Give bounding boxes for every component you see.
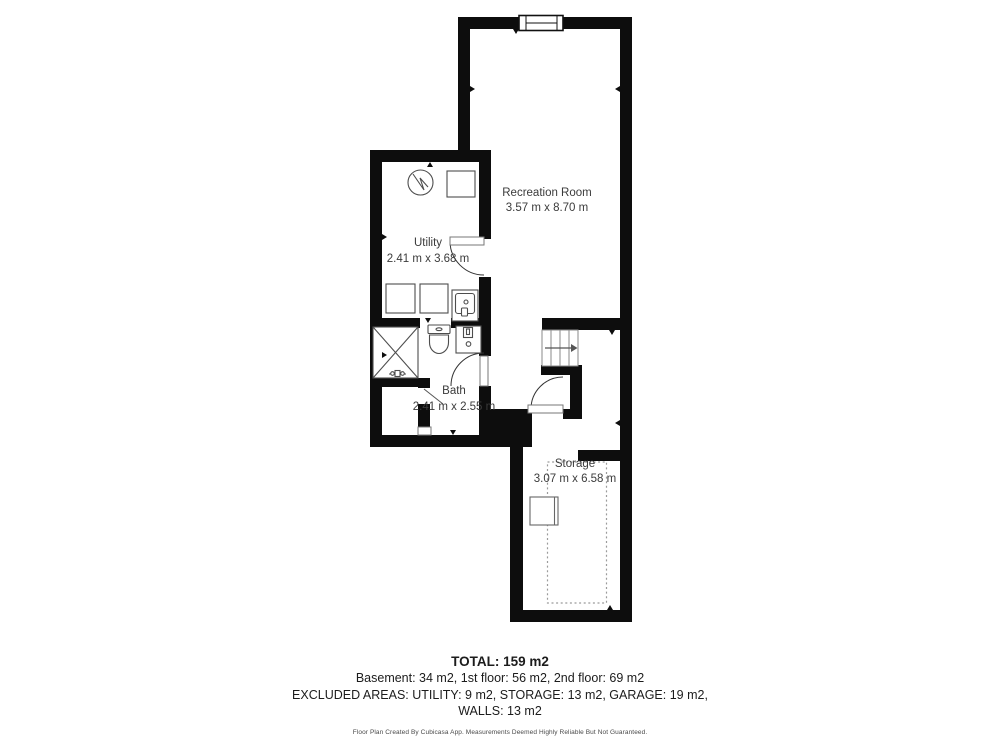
wall [510,610,632,622]
sink-faucet-pin [467,329,470,335]
dryer-icon [420,284,448,313]
closet-small-door [418,427,431,435]
utility-room-label: Utility [414,237,442,249]
bath-room-label: Bath [442,385,466,397]
total-area-text: TOTAL: 159 m2 [0,653,1000,670]
wall-marker [427,162,433,167]
shower-tap [391,372,395,376]
wall-marker [615,420,620,426]
door-arc [451,353,484,386]
door-leaf [450,237,484,245]
recreation-room-dims: 3.57 m x 8.70 m [506,202,588,214]
sink-faucet [462,308,468,316]
door-leaf [480,356,488,386]
sink-drain [464,300,468,304]
storage-room-label: Storage [555,458,595,470]
excluded-areas-text: EXCLUDED AREAS: UTILITY: 9 m2, STORAGE: … [0,687,1000,704]
utility-room-dims: 2.41 m x 3.68 m [387,253,469,265]
wall [479,162,491,239]
stairs-icon [542,330,578,366]
area-summary: TOTAL: 159 m2 Basement: 34 m2, 1st floor… [0,653,1000,736]
disclaimer-text: Floor Plan Created By Cubicasa App. Meas… [0,729,1000,736]
toilet-bowl [430,335,449,354]
wall-marker [513,29,519,34]
wall-marker [470,86,475,92]
recreation-room-label: Recreation Room [502,187,591,199]
wall [563,409,582,419]
bath-sink-icon [456,326,481,353]
shower-icon [373,327,418,378]
floor-plan-drawing: Recreation Room 3.57 m x 8.70 m Utility … [0,0,1000,750]
bath-room-dims: 2.41 m x 2.55 m [413,401,495,413]
door-leaf [528,405,563,413]
wall [458,17,470,162]
appliance-box-icon [447,171,475,197]
floor-areas-text: Basement: 34 m2, 1st floor: 56 m2, 2nd f… [0,670,1000,687]
wall-marker [607,605,613,610]
sink-drain [466,342,471,347]
floor-plan-page: Recreation Room 3.57 m x 8.70 m Utility … [0,0,1000,750]
wall [370,150,491,162]
wall-marker [425,318,431,323]
wall [418,378,430,388]
door-arc [531,377,563,409]
wall [370,378,418,387]
walls-area-text: WALLS: 13 m2 [0,703,1000,720]
wall [370,150,382,447]
toilet-icon [428,325,450,354]
utility-sink-icon [452,290,478,321]
bath-fixtures [373,325,481,378]
shelf-icon [530,497,558,525]
toilet-button [436,328,442,331]
shower-tap [401,372,405,376]
water-heater-icon [408,170,433,195]
wall-marker [615,86,620,92]
wall [542,318,632,330]
wall-marker [382,234,387,240]
wall [510,440,523,622]
wall-marker [450,430,456,435]
walls [370,17,632,622]
shower-mixer [395,371,400,377]
wall-marker [609,330,615,335]
window [519,16,563,31]
washer-icon [386,284,415,313]
wall [479,409,532,447]
storage-room-dims: 3.07 m x 6.58 m [534,473,616,485]
